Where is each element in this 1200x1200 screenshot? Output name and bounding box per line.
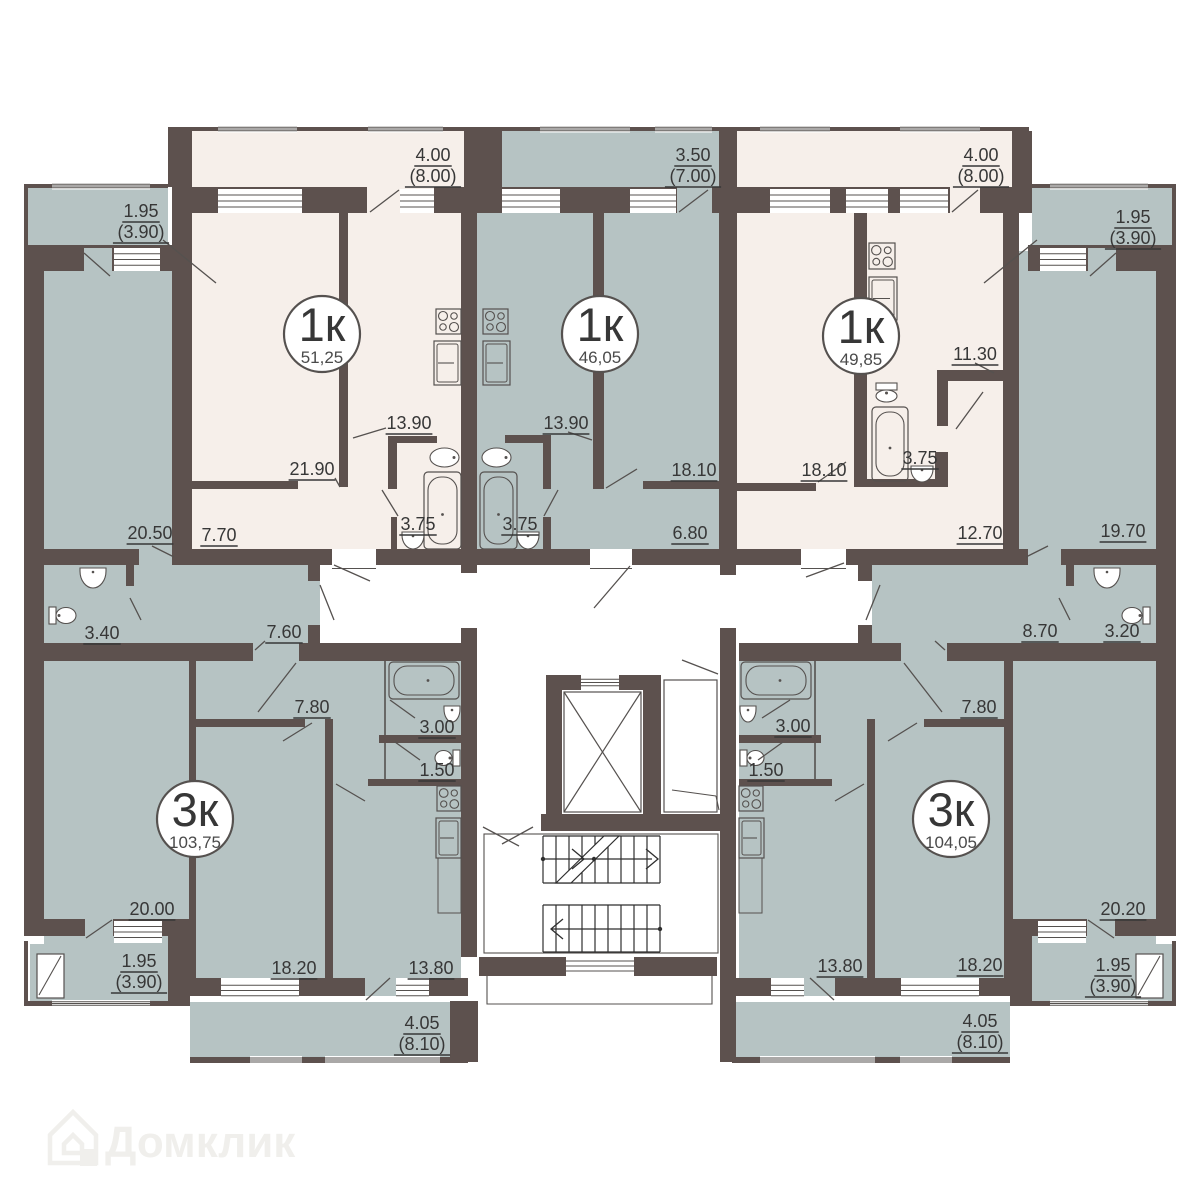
svg-text:Домклик: Домклик bbox=[105, 1118, 296, 1167]
svg-text:3.75: 3.75 bbox=[400, 514, 435, 534]
svg-text:4.05: 4.05 bbox=[404, 1013, 439, 1033]
svg-text:3к: 3к bbox=[928, 783, 975, 836]
svg-text:7.80: 7.80 bbox=[961, 697, 996, 717]
svg-text:103,75: 103,75 bbox=[169, 833, 221, 852]
svg-text:3.75: 3.75 bbox=[902, 448, 937, 468]
svg-text:4.05: 4.05 bbox=[962, 1011, 997, 1031]
svg-text:3.50: 3.50 bbox=[675, 145, 710, 165]
svg-text:(3.90): (3.90) bbox=[115, 972, 162, 992]
svg-text:1.95: 1.95 bbox=[1095, 955, 1130, 975]
svg-text:(3.90): (3.90) bbox=[117, 222, 164, 242]
svg-text:13.90: 13.90 bbox=[386, 413, 431, 433]
svg-text:4.00: 4.00 bbox=[415, 145, 450, 165]
svg-text:(8.10): (8.10) bbox=[398, 1034, 445, 1054]
svg-text:7.60: 7.60 bbox=[266, 622, 301, 642]
svg-text:1.95: 1.95 bbox=[1115, 207, 1150, 227]
svg-text:20.50: 20.50 bbox=[127, 523, 172, 543]
svg-text:3.75: 3.75 bbox=[502, 514, 537, 534]
svg-text:51,25: 51,25 bbox=[301, 348, 344, 367]
svg-text:3к: 3к bbox=[172, 783, 219, 836]
svg-text:(8.10): (8.10) bbox=[956, 1032, 1003, 1052]
svg-text:(7.00): (7.00) bbox=[669, 166, 716, 186]
svg-text:20.00: 20.00 bbox=[129, 899, 174, 919]
svg-text:20.20: 20.20 bbox=[1100, 899, 1145, 919]
svg-text:18.20: 18.20 bbox=[957, 955, 1002, 975]
svg-text:18.20: 18.20 bbox=[271, 958, 316, 978]
svg-text:3.20: 3.20 bbox=[1104, 621, 1139, 641]
svg-text:6.80: 6.80 bbox=[672, 523, 707, 543]
svg-text:1.95: 1.95 bbox=[121, 951, 156, 971]
svg-text:49,85: 49,85 bbox=[840, 350, 883, 369]
svg-text:21.90: 21.90 bbox=[289, 459, 334, 479]
svg-text:1к: 1к bbox=[299, 298, 346, 351]
svg-text:1.50: 1.50 bbox=[748, 760, 783, 780]
svg-text:3.00: 3.00 bbox=[419, 717, 454, 737]
svg-text:(3.90): (3.90) bbox=[1089, 976, 1136, 996]
svg-text:1.95: 1.95 bbox=[123, 201, 158, 221]
svg-text:18.10: 18.10 bbox=[801, 460, 846, 480]
svg-text:(3.90): (3.90) bbox=[1109, 228, 1156, 248]
svg-text:12.70: 12.70 bbox=[957, 523, 1002, 543]
svg-text:4.00: 4.00 bbox=[963, 145, 998, 165]
svg-text:1к: 1к bbox=[838, 300, 885, 353]
svg-text:(8.00): (8.00) bbox=[957, 166, 1004, 186]
svg-text:13.80: 13.80 bbox=[408, 958, 453, 978]
svg-text:104,05: 104,05 bbox=[925, 833, 977, 852]
svg-text:1.50: 1.50 bbox=[419, 760, 454, 780]
svg-text:46,05: 46,05 bbox=[579, 348, 622, 367]
svg-text:19.70: 19.70 bbox=[1100, 521, 1145, 541]
svg-text:7.70: 7.70 bbox=[201, 525, 236, 545]
svg-text:13.90: 13.90 bbox=[543, 413, 588, 433]
svg-text:3.40: 3.40 bbox=[84, 623, 119, 643]
svg-text:13.80: 13.80 bbox=[817, 956, 862, 976]
svg-text:3.00: 3.00 bbox=[775, 716, 810, 736]
svg-text:1к: 1к bbox=[577, 298, 624, 351]
svg-text:18.10: 18.10 bbox=[671, 460, 716, 480]
svg-text:11.30: 11.30 bbox=[953, 344, 997, 364]
svg-text:(8.00): (8.00) bbox=[409, 166, 456, 186]
svg-text:7.80: 7.80 bbox=[294, 697, 329, 717]
svg-text:8.70: 8.70 bbox=[1022, 621, 1057, 641]
